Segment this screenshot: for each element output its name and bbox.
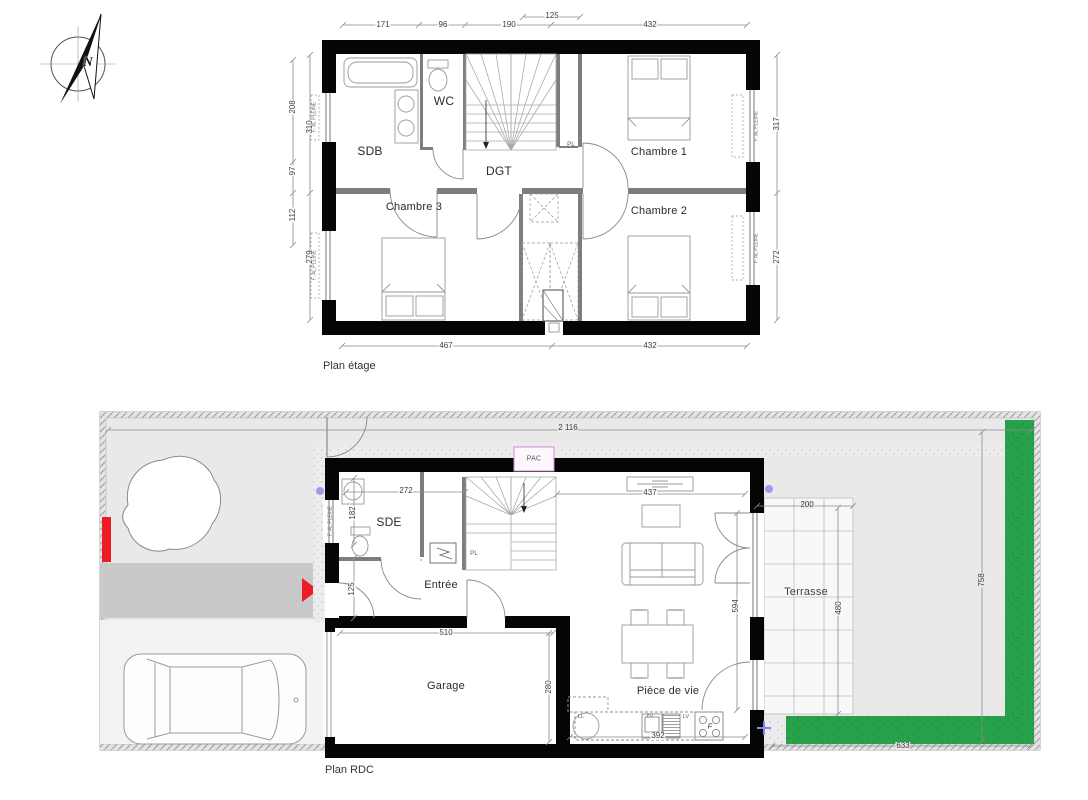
room-label-sdb: SDB (357, 144, 382, 158)
dim-label: 280 (545, 679, 553, 694)
bed-chambre1 (628, 56, 690, 140)
appliance-label-ll: LL (578, 714, 585, 720)
bathtub (344, 58, 417, 87)
window-annotation: F. AL PLEINE (313, 102, 318, 132)
dim-label: 392 (650, 732, 665, 740)
room-label-entree: Entrée (424, 579, 458, 591)
closet-label-pl-etage: PL (567, 142, 575, 148)
dim-label: 125 (544, 12, 559, 20)
dim-label: 190 (501, 21, 516, 29)
rdc-plan-title: Plan RDC (325, 764, 374, 776)
gravel-band-top (313, 443, 1005, 458)
utility-dot-left (316, 487, 324, 495)
dim-label: 96 (438, 21, 449, 29)
window-annotation: F. AL PLEINE (755, 233, 760, 263)
wc-toilet (428, 60, 448, 91)
pac-label: PAC (527, 456, 541, 463)
room-label-piece-de-vie: Pièce de vie (637, 685, 699, 697)
room-label-garage: Garage (427, 680, 465, 692)
car (124, 654, 306, 744)
green-hedge-right (1005, 420, 1034, 744)
dim-label: 200 (799, 501, 814, 509)
dim-label: 432 (642, 342, 657, 350)
etage-plan (311, 40, 762, 335)
dim-label: 633 (895, 742, 910, 750)
room-label-dgt: DGT (486, 164, 512, 178)
boundary-hatch-top (100, 412, 1040, 418)
bed-chambre3 (382, 238, 445, 320)
etage-door-arcs (390, 143, 628, 239)
dim-label: 272 (773, 249, 781, 264)
vanity-sinks (395, 90, 418, 143)
room-label-chambre2: Chambre 2 (631, 205, 687, 217)
dim-label: 272 (398, 487, 413, 495)
green-hedge-bottom (786, 716, 1034, 744)
room-label-wc: WC (434, 94, 454, 108)
dim-label: 317 (773, 116, 781, 131)
closet-label-pl-rdc: PL (470, 551, 478, 557)
dim-label: 97 (289, 166, 297, 177)
floorplan-sheet: N SDB WC DGT Chambre 1 Chambre 2 Chambre… (0, 0, 1088, 800)
room-label-chambre1: Chambre 1 (631, 146, 687, 158)
dim-label: 171 (375, 21, 390, 29)
dim-label: 125 (348, 581, 356, 596)
north-compass (40, 14, 116, 104)
dim-label: 432 (642, 21, 657, 29)
compass-north-letter: N (83, 54, 92, 70)
dim-label: 182 (349, 505, 357, 520)
red-boundary-marker (102, 517, 111, 562)
dim-label: 480 (835, 600, 843, 615)
dim-label: 2 116 (557, 424, 578, 432)
dim-label: 758 (978, 572, 986, 587)
dim-label: 208 (289, 99, 297, 114)
electrical-panel-icon (430, 543, 456, 563)
utility-dot-right (765, 485, 773, 493)
dim-label: 510 (438, 629, 453, 637)
room-label-terrasse: Terrasse (784, 586, 828, 598)
appliance-label-ev: EV (647, 714, 653, 719)
window-annotation: F. AL PLEINE (755, 111, 760, 141)
dim-label: 112 (289, 208, 297, 223)
driveway (100, 563, 326, 618)
room-label-chambre3: Chambre 3 (386, 201, 442, 213)
bed-chambre2 (628, 236, 690, 320)
etage-plan-title: Plan étage (323, 360, 376, 372)
dim-label: 467 (438, 342, 453, 350)
appliance-label-hob: F (708, 724, 712, 731)
room-label-sde: SDE (376, 515, 401, 529)
dim-label: 437 (642, 489, 657, 497)
boundary-hatch-right (1034, 412, 1040, 750)
dim-label: 594 (732, 598, 740, 613)
etage-stairs (466, 54, 556, 150)
rdc-stairs (466, 477, 556, 570)
window-annotation: F. AL PLEINE (313, 250, 318, 280)
window-annotation: F. AL PLEINE (329, 506, 334, 536)
appliance-label-lv: LV (683, 714, 690, 720)
